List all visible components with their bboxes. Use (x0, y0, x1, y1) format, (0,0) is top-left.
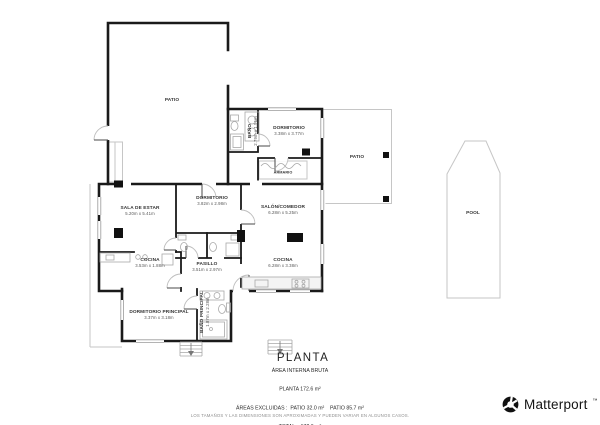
matterport-logo-icon (502, 396, 519, 413)
matterport-wordmark: Matterport (524, 396, 588, 414)
room-label-bano-principal: BAÑO PRINCIPAL 1.87m x 2.28m (199, 291, 211, 333)
disclaimer-text: LOS TAMAÑOS Y LAS DIMENSIONES SON APROXI… (191, 414, 409, 419)
room-label-armario: ARMARIO (274, 171, 293, 176)
room-name: POOL (466, 210, 480, 216)
room-dims: 3.53m x 1.88m (135, 263, 164, 269)
area-summary-heading: ÁREA INTERNA BRUTA (236, 368, 364, 374)
room-dims: 2.79m x 1.51m (253, 116, 259, 145)
patio-post (383, 196, 389, 202)
floorplan-page: PATIO BAÑO 2.79m x 1.51m DORMITORIO 3.38… (0, 0, 600, 425)
room-name: ARMARIO (274, 171, 293, 176)
room-label-dormitorio-top: DORMITORIO 3.38m x 3.77m (273, 125, 305, 137)
area-summary-excluidas: ÁREAS EXCLUIDAS : PATIO 32.0 m² PATIO 85… (236, 405, 364, 411)
room-label-cocina-left: COCINA 3.53m x 1.88m (135, 257, 164, 269)
room-dims: 6.28m x 3.38m (268, 263, 297, 269)
room-name: PATIO (165, 97, 179, 103)
room-label-cocina-right: COCINA 6.28m x 3.38m (268, 257, 297, 269)
room-name: PATIO (350, 154, 364, 160)
room-label-sala-de-estar: SALA DE ESTAR 5.20m x 5.41m (120, 205, 159, 217)
matterport-logo: Matterport ™ (502, 396, 598, 414)
patio-post (383, 152, 389, 158)
area-summary-planta: PLANTA 172.6 m² (236, 387, 364, 393)
room-dims: 1.87m x 2.28m (205, 291, 211, 333)
room-label-pasillo: PASILLO 3.51m x 2.97m (192, 261, 221, 273)
room-label-pool: POOL (466, 210, 480, 216)
room-label-salon-comedor: SALÓN/COMEDOR 6.28m x 5.25m (261, 204, 305, 216)
room-dims: 3.37m x 3.18m (129, 315, 188, 321)
room-label-dormitorio-mid: DORMITORIO 3.82m x 2.98m (196, 195, 228, 207)
pool-outline (447, 141, 500, 298)
room-label-patio-top: PATIO (165, 97, 179, 103)
trademark-symbol: ™ (593, 396, 598, 406)
stairs (180, 340, 292, 356)
room-dims: 5.20m x 5.41m (120, 211, 159, 217)
room-label-dormitorio-principal: DORMITORIO PRINCIPAL 3.37m x 3.18m (129, 309, 188, 321)
wall-piers (114, 149, 389, 243)
room-label-bano: BAÑO 2.79m x 1.51m (247, 116, 259, 145)
room-dims: 3.38m x 3.77m (273, 131, 305, 137)
room-dims: 6.28m x 5.25m (261, 210, 305, 216)
room-label-patio-right: PATIO (350, 154, 364, 160)
room-dims: 3.51m x 2.97m (192, 267, 221, 273)
room-dims: 3.82m x 2.98m (196, 201, 228, 207)
